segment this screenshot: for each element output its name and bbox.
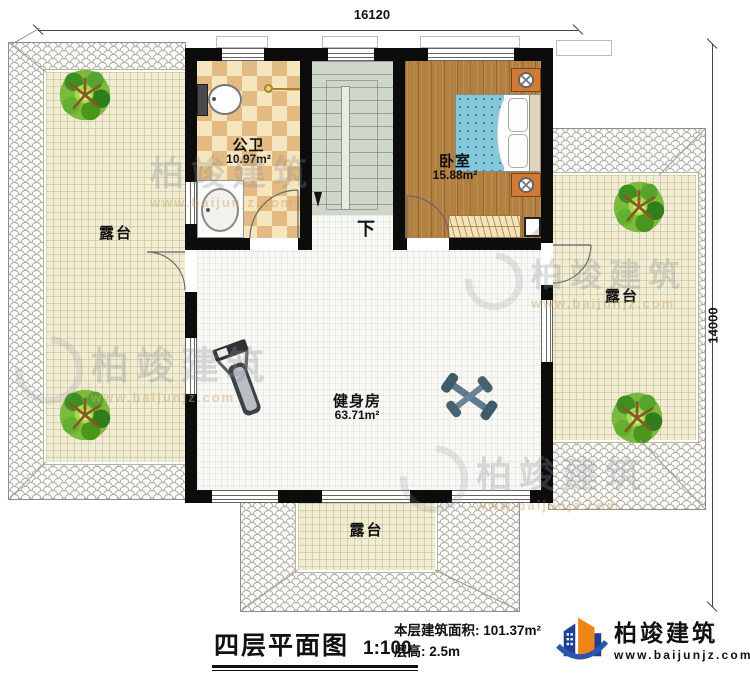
drawing-info: 本层建筑面积: 101.37m² 层高: 2.5m <box>394 620 541 662</box>
terrace-left-label: 露台 <box>46 222 186 243</box>
floorplan-canvas: 16120 14000 露台 露台 露台 下 <box>0 0 750 676</box>
window <box>428 48 514 61</box>
stair-direction-arrow <box>314 192 322 207</box>
title-block: 四层平面图1:100 本层建筑面积: 101.37m² 层高: 2.5m 柏竣建… <box>0 612 750 676</box>
window <box>222 48 264 61</box>
company-name: 柏竣建筑 <box>614 614 750 648</box>
door-opening <box>250 238 298 250</box>
floor-area-line: 本层建筑面积: 101.37m² <box>394 620 541 641</box>
stair-handrail <box>341 86 350 210</box>
right-dimension-label: 14000 <box>706 296 721 356</box>
floor-height-label: 层高: <box>394 644 426 659</box>
wardrobe-icon <box>448 215 521 238</box>
toilet-tank-icon <box>197 84 208 116</box>
floor-area-label: 本层建筑面积: <box>394 623 480 638</box>
toilet-detail <box>212 97 216 101</box>
floor-height-value: 2.5m <box>429 644 460 659</box>
window <box>452 490 530 503</box>
bed-headboard <box>529 94 541 172</box>
corner-cabinet-icon <box>524 217 541 237</box>
window <box>322 490 410 503</box>
nightstand-icon <box>511 68 541 92</box>
company-logo-icon <box>556 612 608 664</box>
terrace-bottom: 露台 <box>298 503 435 570</box>
pillow-icon <box>508 134 528 168</box>
tree-icon <box>611 179 667 235</box>
floor-height-line: 层高: 2.5m <box>394 641 541 662</box>
lamp-icon <box>518 72 534 88</box>
door-opening <box>541 243 553 285</box>
towel-bar-icon <box>273 88 300 90</box>
tree-icon <box>57 387 113 443</box>
door-opening <box>185 250 197 292</box>
floor-area-value: 101.37m² <box>483 623 541 638</box>
drawing-title-group: 四层平面图1:100 <box>212 626 418 668</box>
drawing-title: 四层平面图 <box>214 632 349 660</box>
window-sill <box>556 40 612 56</box>
wall-segment <box>393 48 405 250</box>
top-dimension-line <box>38 30 578 31</box>
towel-ring-icon <box>264 84 273 93</box>
gym-area-label: 63.71m² <box>297 408 417 422</box>
window-sill <box>420 36 520 48</box>
terrace-right-label: 露台 <box>548 285 696 306</box>
window <box>185 182 197 224</box>
stair-frame <box>326 80 378 210</box>
sink-detail <box>206 208 210 212</box>
window-sill <box>322 36 378 48</box>
dumbbells-icon <box>438 365 500 429</box>
bathroom-area-label: 10.97m² <box>197 152 300 166</box>
wall-segment <box>300 48 312 250</box>
top-dimension-label: 16120 <box>332 7 412 22</box>
tree-icon <box>57 67 113 123</box>
door-opening <box>407 238 449 250</box>
tree-icon <box>609 390 665 446</box>
company-logo: 柏竣建筑 www.baijunjz.com <box>556 612 750 664</box>
window-sill <box>216 36 268 48</box>
company-website: www.baijunjz.com <box>614 648 750 662</box>
window <box>185 338 197 394</box>
stairs-down-label: 下 <box>357 215 375 241</box>
nightstand-icon <box>511 173 541 197</box>
bedroom-area-label: 15.88m² <box>405 168 505 182</box>
terrace-bottom-label: 露台 <box>298 519 435 540</box>
window <box>541 300 553 362</box>
window <box>212 490 278 503</box>
window <box>328 48 374 61</box>
lamp-icon <box>518 177 534 193</box>
pillow-icon <box>508 98 528 132</box>
